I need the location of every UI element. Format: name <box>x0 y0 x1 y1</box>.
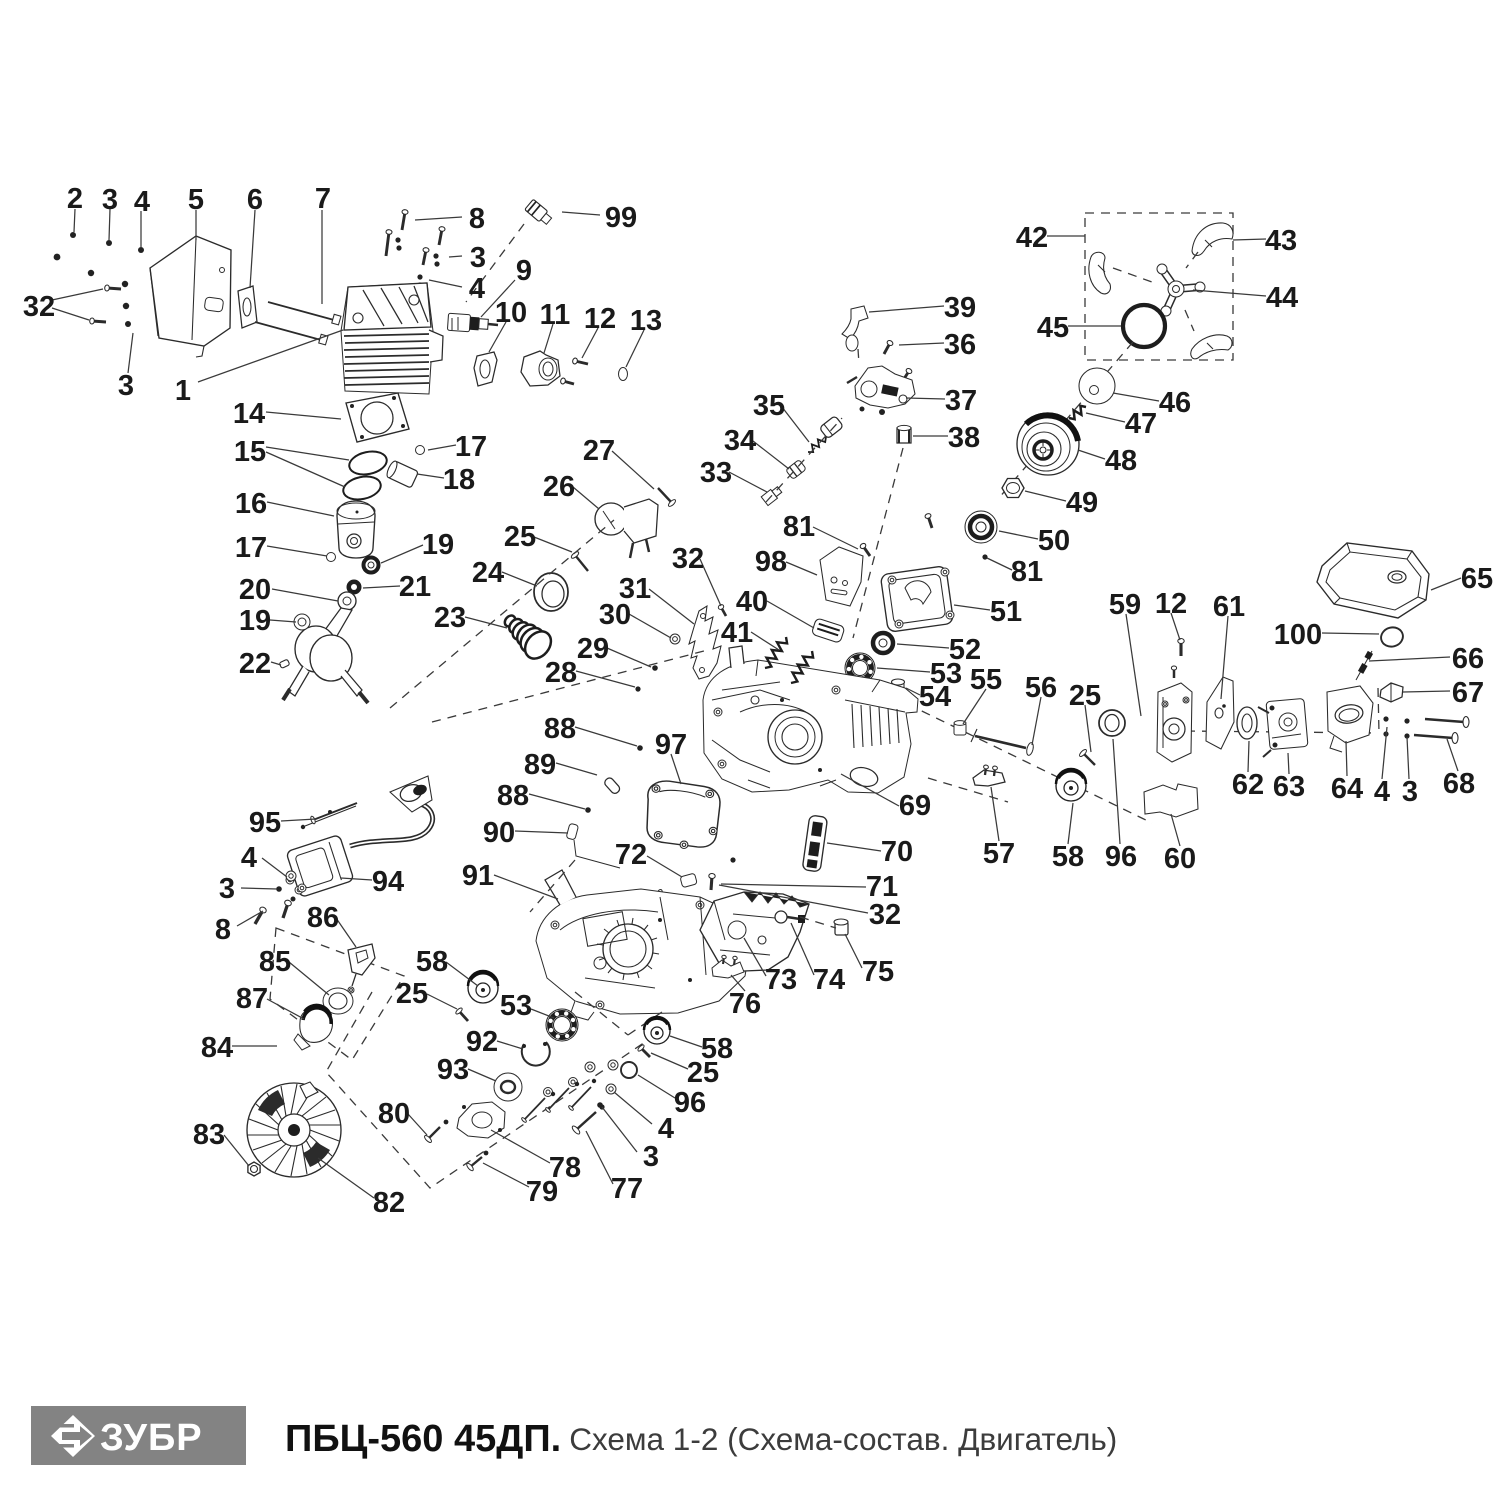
svg-text:81: 81 <box>1011 556 1043 588</box>
svg-text:22: 22 <box>239 648 271 680</box>
svg-text:45: 45 <box>1037 312 1069 344</box>
svg-text:83: 83 <box>193 1119 225 1151</box>
svg-text:47: 47 <box>1125 408 1157 440</box>
svg-text:68: 68 <box>1443 768 1475 800</box>
svg-text:3: 3 <box>470 242 486 274</box>
svg-text:25: 25 <box>687 1057 719 1089</box>
svg-text:25: 25 <box>504 521 536 553</box>
svg-text:25: 25 <box>1069 680 1101 712</box>
svg-text:3: 3 <box>1402 776 1418 808</box>
svg-text:25: 25 <box>396 978 428 1010</box>
svg-text:58: 58 <box>416 946 448 978</box>
svg-text:76: 76 <box>729 988 761 1020</box>
svg-text:86: 86 <box>307 902 339 934</box>
svg-text:34: 34 <box>724 425 756 457</box>
svg-text:4: 4 <box>658 1113 674 1145</box>
svg-text:49: 49 <box>1066 487 1098 519</box>
svg-text:15: 15 <box>234 436 266 468</box>
svg-text:10: 10 <box>495 297 527 329</box>
svg-text:5: 5 <box>188 184 204 216</box>
svg-text:21: 21 <box>399 571 431 603</box>
svg-text:32: 32 <box>672 543 704 575</box>
svg-text:73: 73 <box>765 964 797 996</box>
svg-text:1: 1 <box>175 375 191 407</box>
svg-text:12: 12 <box>584 303 616 335</box>
svg-text:32: 32 <box>869 899 901 931</box>
svg-text:43: 43 <box>1265 225 1297 257</box>
svg-text:82: 82 <box>373 1187 405 1219</box>
svg-text:23: 23 <box>434 602 466 634</box>
svg-text:75: 75 <box>862 956 894 988</box>
svg-text:19: 19 <box>239 605 271 637</box>
svg-text:24: 24 <box>472 557 504 589</box>
svg-text:19: 19 <box>422 529 454 561</box>
svg-text:64: 64 <box>1331 773 1363 805</box>
svg-text:8: 8 <box>469 203 485 235</box>
svg-text:63: 63 <box>1273 771 1305 803</box>
svg-text:57: 57 <box>983 838 1015 870</box>
svg-text:50: 50 <box>1038 525 1070 557</box>
svg-text:12: 12 <box>1155 588 1187 620</box>
svg-text:6: 6 <box>247 184 263 216</box>
svg-text:66: 66 <box>1452 643 1484 675</box>
svg-text:3: 3 <box>118 370 134 402</box>
svg-text:38: 38 <box>948 422 980 454</box>
svg-text:81: 81 <box>783 511 815 543</box>
svg-text:92: 92 <box>466 1026 498 1058</box>
svg-text:26: 26 <box>543 471 575 503</box>
svg-text:8: 8 <box>215 914 231 946</box>
svg-text:29: 29 <box>577 633 609 665</box>
svg-text:4: 4 <box>1374 776 1390 808</box>
svg-text:4: 4 <box>469 273 485 305</box>
svg-text:37: 37 <box>945 385 977 417</box>
svg-text:20: 20 <box>239 574 271 606</box>
svg-text:87: 87 <box>236 983 268 1015</box>
svg-text:35: 35 <box>753 390 785 422</box>
svg-text:69: 69 <box>899 790 931 822</box>
svg-text:79: 79 <box>526 1176 558 1208</box>
svg-text:ЗУБР: ЗУБР <box>100 1417 203 1459</box>
svg-text:44: 44 <box>1266 282 1298 314</box>
svg-text:51: 51 <box>990 596 1022 628</box>
svg-text:96: 96 <box>674 1087 706 1119</box>
svg-text:17: 17 <box>235 532 267 564</box>
svg-text:31: 31 <box>619 573 651 605</box>
svg-text:41: 41 <box>721 617 753 649</box>
svg-text:97: 97 <box>655 729 687 761</box>
svg-text:70: 70 <box>881 836 913 868</box>
svg-text:4: 4 <box>241 842 257 874</box>
svg-text:61: 61 <box>1213 591 1245 623</box>
svg-text:62: 62 <box>1232 769 1264 801</box>
svg-text:100: 100 <box>1274 619 1322 651</box>
svg-text:88: 88 <box>497 780 529 812</box>
svg-text:91: 91 <box>462 860 494 892</box>
svg-text:16: 16 <box>235 488 267 520</box>
svg-text:84: 84 <box>201 1032 233 1064</box>
svg-text:58: 58 <box>1052 841 1084 873</box>
svg-text:59: 59 <box>1109 589 1141 621</box>
svg-text:2: 2 <box>67 183 83 215</box>
svg-text:88: 88 <box>544 713 576 745</box>
svg-text:48: 48 <box>1105 445 1137 477</box>
svg-text:90: 90 <box>483 817 515 849</box>
svg-text:74: 74 <box>813 964 845 996</box>
svg-text:85: 85 <box>259 946 291 978</box>
svg-text:27: 27 <box>583 435 615 467</box>
svg-text:13: 13 <box>630 305 662 337</box>
svg-text:39: 39 <box>944 292 976 324</box>
svg-text:56: 56 <box>1025 672 1057 704</box>
svg-text:53: 53 <box>500 990 532 1022</box>
svg-text:40: 40 <box>736 586 768 618</box>
svg-text:11: 11 <box>540 299 571 331</box>
svg-text:54: 54 <box>919 681 951 713</box>
svg-text:55: 55 <box>970 664 1002 696</box>
svg-text:28: 28 <box>545 657 577 689</box>
svg-text:99: 99 <box>605 202 637 234</box>
svg-text:67: 67 <box>1452 677 1484 709</box>
svg-text:94: 94 <box>372 866 404 898</box>
svg-text:77: 77 <box>611 1173 643 1205</box>
svg-text:60: 60 <box>1164 843 1196 875</box>
svg-text:80: 80 <box>378 1098 410 1130</box>
svg-text:7: 7 <box>315 183 331 215</box>
svg-text:ПБЦ-560 45ДП.Схема 1-2 (Схема-: ПБЦ-560 45ДП.Схема 1-2 (Схема-состав. Дв… <box>285 1418 1117 1460</box>
svg-text:3: 3 <box>643 1141 659 1173</box>
svg-text:3: 3 <box>102 184 118 216</box>
svg-text:17: 17 <box>455 431 487 463</box>
svg-text:46: 46 <box>1159 387 1191 419</box>
svg-text:95: 95 <box>249 807 281 839</box>
svg-text:98: 98 <box>755 546 787 578</box>
svg-text:93: 93 <box>437 1054 469 1086</box>
svg-text:33: 33 <box>700 457 732 489</box>
svg-text:18: 18 <box>443 464 475 496</box>
svg-text:89: 89 <box>524 749 556 781</box>
svg-text:65: 65 <box>1461 563 1493 595</box>
svg-text:3: 3 <box>219 873 235 905</box>
svg-text:32: 32 <box>23 291 55 323</box>
svg-text:72: 72 <box>615 839 647 871</box>
svg-text:14: 14 <box>233 398 265 430</box>
svg-text:96: 96 <box>1105 841 1137 873</box>
svg-text:42: 42 <box>1016 222 1048 254</box>
svg-text:9: 9 <box>516 255 532 287</box>
svg-text:36: 36 <box>944 329 976 361</box>
svg-text:4: 4 <box>134 186 150 218</box>
